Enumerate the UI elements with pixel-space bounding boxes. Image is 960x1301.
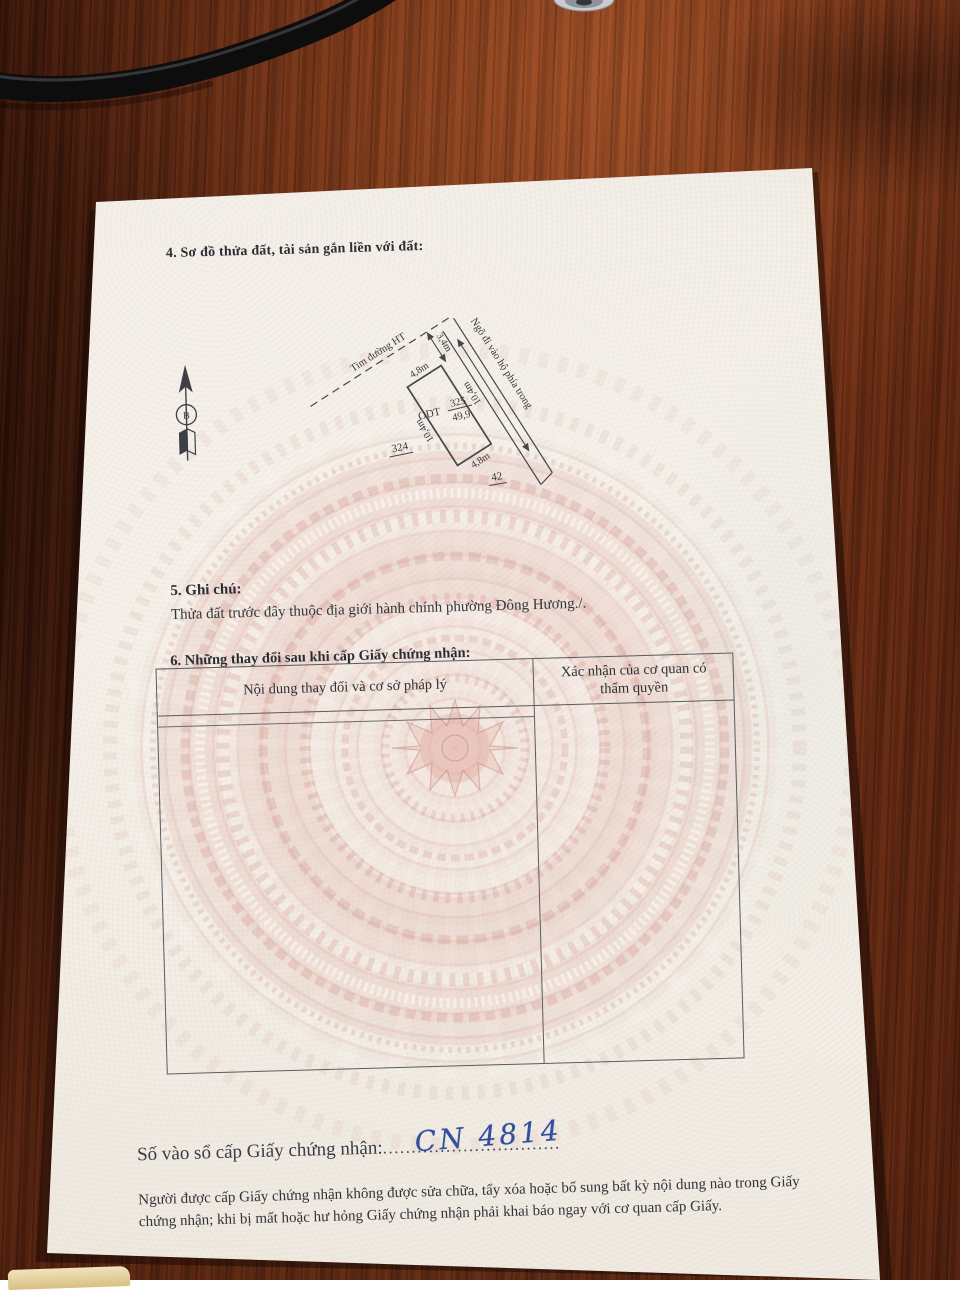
registry-label: Số vào sổ cấp Giấy chứng nhận: — [137, 1137, 383, 1165]
black-cable — [0, 0, 520, 140]
table-column-divider — [532, 659, 545, 1063]
north-letter: B — [183, 411, 190, 422]
svg-text:42: 42 — [490, 470, 503, 484]
section4-title: 4. Sơ đồ thửa đất, tài sản gắn liền với … — [166, 239, 424, 262]
dim-top: 4,8m — [408, 360, 431, 380]
section5-title: 5. Ghi chú: — [170, 581, 242, 600]
alley-end-cap — [539, 473, 555, 485]
adjacent-parcel-bottom: 42 — [487, 470, 507, 486]
road-label: Tim đường HT — [349, 331, 409, 375]
page-content: 4. Sơ đồ thửa đất, tài sản gắn liền với … — [72, 170, 883, 1301]
metal-connector — [549, 0, 619, 18]
north-arrow-fletch-left — [179, 429, 188, 455]
road-centerline — [311, 318, 449, 406]
table-header-confirm-col: Xác nhận của cơ quan có thẩm quyền — [533, 658, 736, 700]
parcel-area: 49,9 — [451, 409, 471, 424]
parcel-number: 325 — [449, 396, 467, 410]
table-header-rule — [158, 700, 734, 717]
north-arrow: B — [163, 362, 210, 467]
desk-object-yellow — [8, 1266, 131, 1290]
cable-body — [0, 0, 400, 89]
table-header-content-col: Nội dung thay đổi và cơ sở pháp lý — [157, 674, 533, 701]
adjacent-parcel-left: 324 — [387, 439, 413, 457]
footer-warning-text: Người được cấp Giấy chứng nhận không đượ… — [138, 1171, 829, 1233]
north-arrow-fletch-right — [187, 428, 196, 454]
dim-bottom: 4,8m — [469, 451, 492, 471]
section5-note: Thửa đất trước đây thuộc địa giới hành c… — [171, 596, 587, 625]
parcel-diagram: Tim đường HT 3,4m 4,8m 10,4m 10,4m 4,8m … — [224, 254, 662, 546]
registry-line: Số vào sổ cấp Giấy chứng nhận:..........… — [137, 1133, 561, 1167]
photographed-certificate-scene: { "page": { "section4_title": "4. Sơ đồ … — [0, 0, 960, 1280]
changes-table: Nội dung thay đổi và cơ sở pháp lý Xác n… — [155, 652, 744, 1074]
table-header-rule-secondary — [158, 716, 535, 728]
